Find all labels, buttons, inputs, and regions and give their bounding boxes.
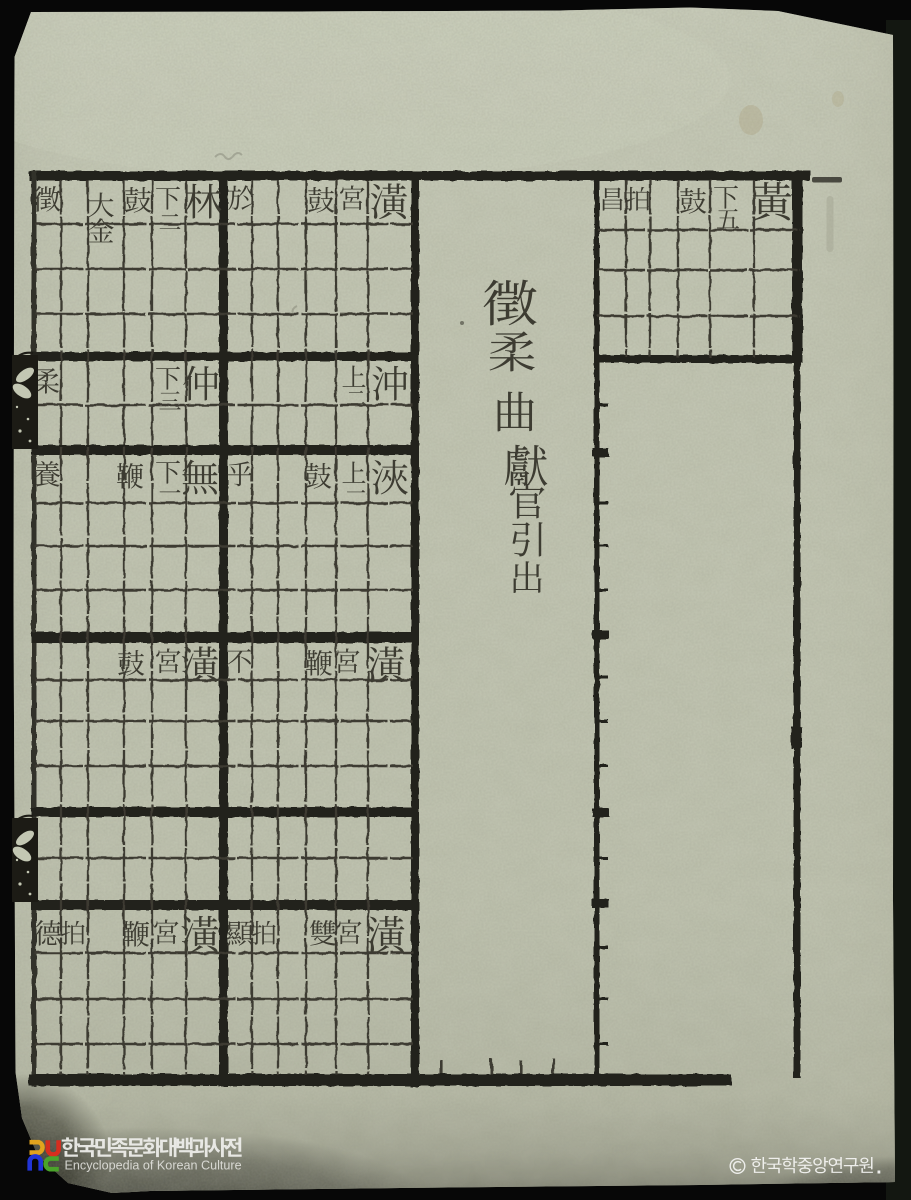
svg-text:Encyclopedia of Korean Culture: Encyclopedia of Korean Culture: [65, 1159, 242, 1173]
